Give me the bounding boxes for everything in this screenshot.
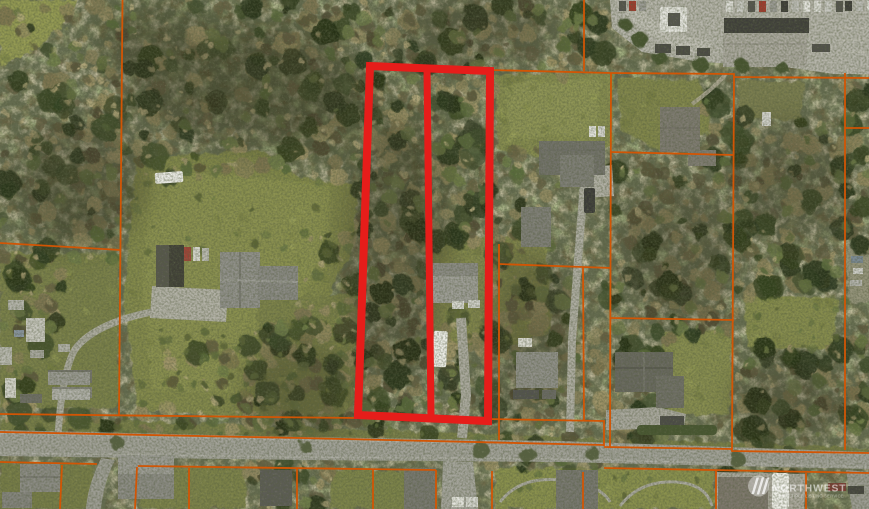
svg-text:MULTIPLE LISTING SERVICE: MULTIPLE LISTING SERVICE [782, 494, 844, 499]
